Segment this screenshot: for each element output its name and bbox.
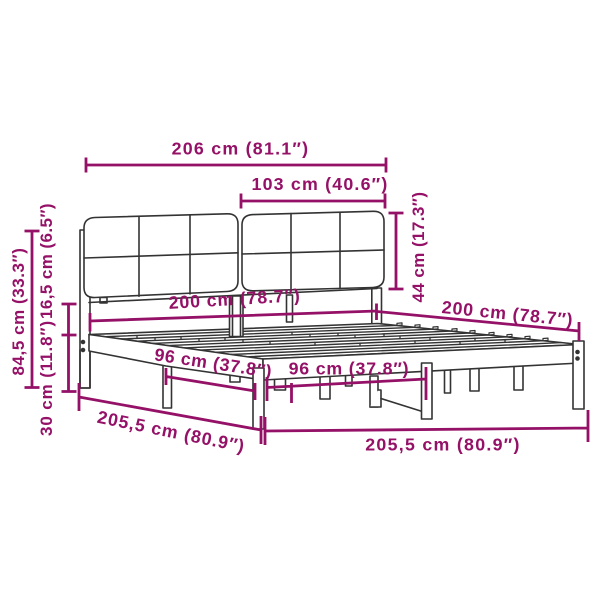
svg-text:84,5 cm (33.3″): 84,5 cm (33.3″) [9, 248, 28, 376]
svg-text:205,5 cm (80.9″): 205,5 cm (80.9″) [365, 435, 521, 455]
svg-text:30 cm (11.8″): 30 cm (11.8″) [37, 320, 56, 436]
svg-text:96 cm (37.8″): 96 cm (37.8″) [289, 359, 410, 379]
svg-text:16,5 cm (6.5″): 16,5 cm (6.5″) [37, 203, 56, 319]
svg-text:206 cm (81.1″): 206 cm (81.1″) [172, 139, 310, 159]
svg-text:44 cm (17.3″): 44 cm (17.3″) [409, 192, 428, 303]
svg-text:103 cm (40.6″): 103 cm (40.6″) [251, 174, 388, 194]
